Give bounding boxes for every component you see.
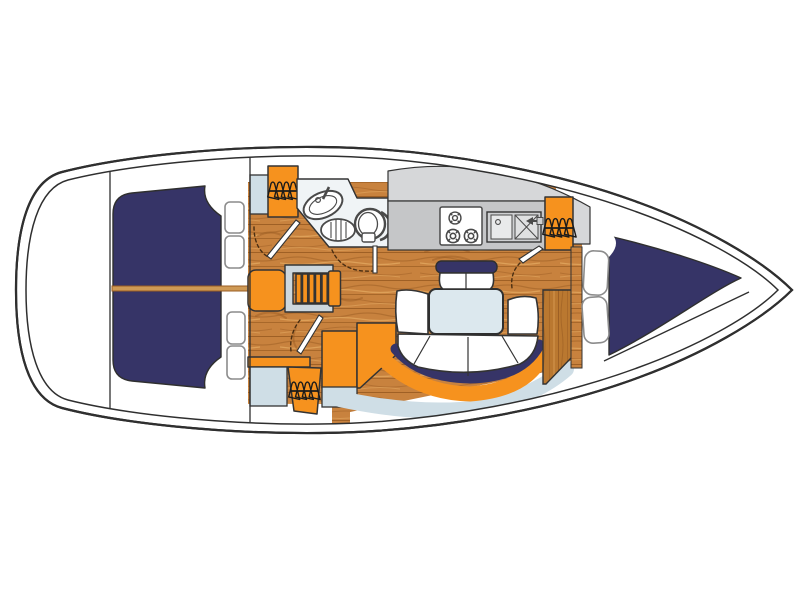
cabinet-panel-starboard [250,367,287,406]
settee-backrest-right [508,296,538,334]
vberth-floor-strip [571,247,582,368]
forward-bench [436,261,497,289]
galley-cabinet-a [322,331,357,388]
companionway-steps [296,271,341,306]
shower-grate [321,219,355,241]
galley-sink [487,212,543,242]
step [309,274,314,303]
pillow [581,296,609,344]
step [296,274,301,303]
pillow [227,312,245,344]
stove [440,207,482,245]
engine-box-seat [248,270,286,311]
salon-table [429,289,503,334]
pillow [583,250,609,295]
pillow [225,236,244,268]
pillow [225,202,244,233]
pillow [227,346,245,379]
boat-floor-plan [0,0,800,600]
step-wide [329,271,341,306]
step [316,274,321,303]
step [322,274,327,303]
cabinet-front-strip [248,357,310,367]
settee-backrest-left [396,290,428,334]
floor-plan-svg [0,0,800,600]
step [303,274,308,303]
door-leaf-head [373,246,377,273]
bench-backrest [436,261,497,273]
cabinet-panel-port-aft [250,175,270,214]
aft-cabin [112,186,253,388]
aft-berth-center-strip [112,286,253,291]
hanging-locker-galley [545,197,573,250]
